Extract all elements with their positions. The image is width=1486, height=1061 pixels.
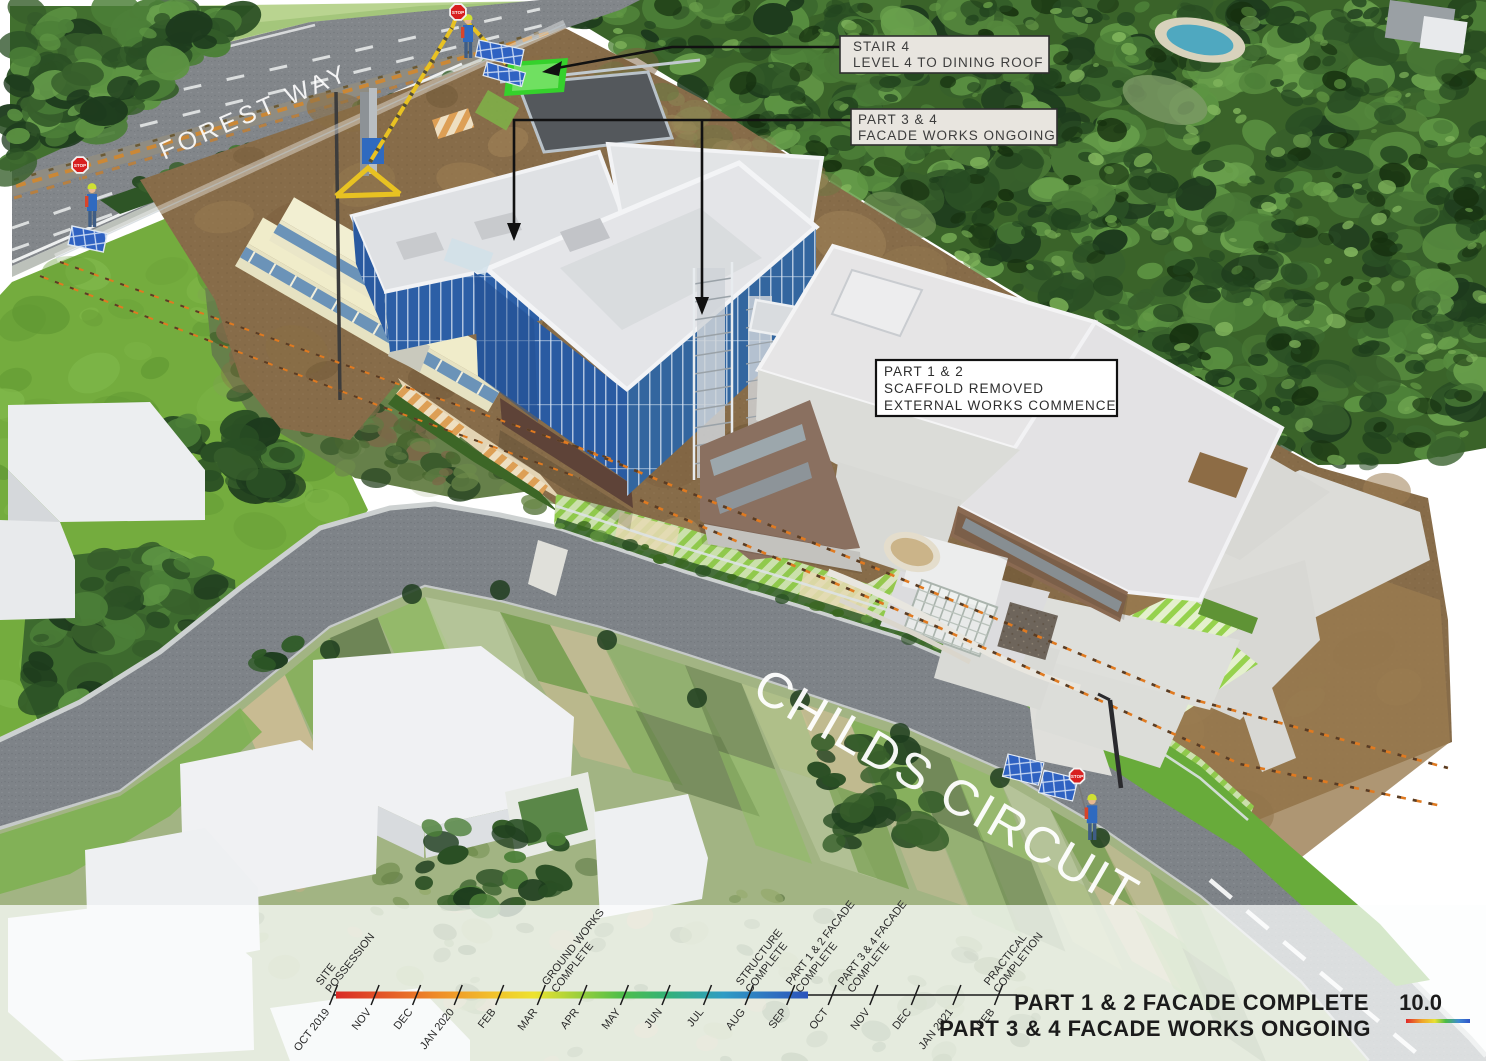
svg-text:STOP: STOP [452,10,464,15]
svg-text:LEVEL 4 TO DINING ROOF: LEVEL 4 TO DINING ROOF [853,55,1044,70]
svg-text:STAIR 4: STAIR 4 [853,39,910,54]
svg-text:PART 3 & 4 FACADE WORKS ONGOIN: PART 3 & 4 FACADE WORKS ONGOING [939,1016,1371,1041]
svg-text:PART 1 & 2: PART 1 & 2 [884,364,964,379]
svg-text:PART 3 & 4: PART 3 & 4 [858,112,938,127]
svg-text:FACADE WORKS ONGOING: FACADE WORKS ONGOING [858,128,1056,143]
svg-text:STOP: STOP [1071,774,1083,779]
svg-text:10.0: 10.0 [1399,990,1442,1015]
svg-text:EXTERNAL WORKS COMMENCE: EXTERNAL WORKS COMMENCE [884,398,1117,413]
svg-text:STOP: STOP [74,163,86,168]
svg-text:PART 1 & 2 FACADE COMPLETE: PART 1 & 2 FACADE COMPLETE [1014,990,1369,1015]
svg-text:SCAFFOLD REMOVED: SCAFFOLD REMOVED [884,381,1044,396]
